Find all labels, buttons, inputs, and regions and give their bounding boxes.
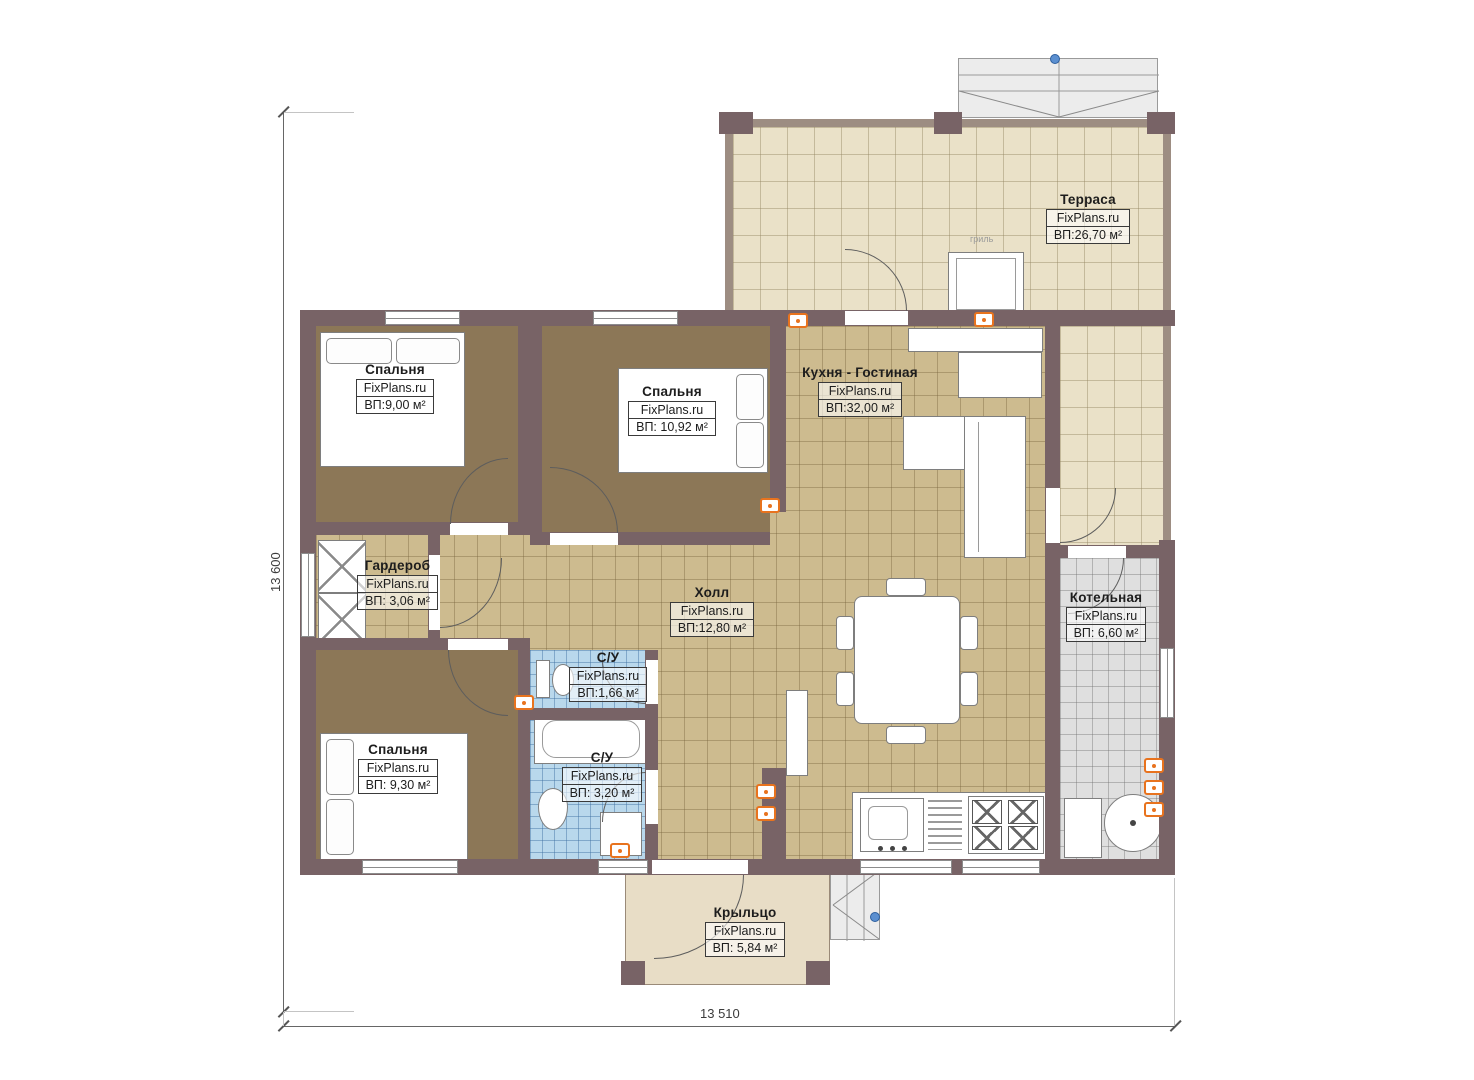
pillow (326, 799, 354, 855)
terrace-post (1147, 112, 1175, 134)
dimension-line-left (283, 112, 284, 1012)
wall-bath-divider (530, 708, 658, 720)
room-brand: FixPlans.ru (357, 380, 434, 396)
socket-icon (756, 806, 776, 821)
door-opening-terrace-side (1046, 488, 1060, 543)
room-brand: FixPlans.ru (629, 402, 715, 418)
room-label-bedroom1: Спальня FixPlans.ru ВП:9,00 м² (330, 362, 460, 414)
pillow (326, 338, 392, 364)
terrace-steps-lines (959, 59, 1159, 119)
room-label-porch: Крыльцо FixPlans.ru ВП: 5,84 м² (680, 905, 810, 957)
chair (960, 616, 978, 650)
room-label-bath2: С/У FixPlans.ru ВП: 3,20 м² (552, 750, 652, 802)
sink-knob (878, 846, 883, 851)
sink-knob (902, 846, 907, 851)
room-name: Терраса (1028, 192, 1148, 207)
tv-cabinet (786, 690, 808, 776)
room-name: Спальня (607, 384, 737, 399)
socket-icon (788, 313, 808, 328)
kitchen-cabinet (958, 352, 1042, 398)
room-name: Спальня (330, 362, 460, 377)
terrace-post (934, 112, 962, 134)
floor-plan-canvas: 13 600 13 510 (0, 0, 1474, 1080)
room-name: Спальня (333, 742, 463, 757)
room-area: ВП: 9,30 м² (359, 776, 438, 793)
socket-icon (760, 498, 780, 513)
grill-label: гриль (970, 234, 993, 244)
boiler-tank-center (1130, 820, 1136, 826)
socket-icon (514, 695, 534, 710)
kitchen-cabinet (908, 328, 1043, 352)
dimension-label-left: 13 600 (268, 552, 283, 592)
window (598, 860, 648, 874)
wall-kitchen-left-upper (770, 326, 786, 512)
sink-bowl (868, 806, 908, 840)
porch-post (621, 961, 645, 985)
room-brand: FixPlans.ru (671, 603, 753, 619)
toilet-tank (536, 660, 550, 698)
terrace-steps (958, 58, 1158, 118)
chair (886, 578, 926, 596)
stove-burner (1008, 800, 1038, 824)
socket-icon (974, 312, 994, 327)
marker-dot (1050, 54, 1060, 64)
pillow (736, 374, 764, 420)
marker-dot (870, 912, 880, 922)
socket-icon (1144, 780, 1164, 795)
room-label-bedroom2: Спальня FixPlans.ru ВП: 10,92 м² (607, 384, 737, 436)
door-opening-bedroom3 (448, 639, 508, 650)
stove-burner (972, 826, 1002, 850)
porch-steps-lines (831, 869, 881, 941)
terrace-post (719, 112, 753, 134)
wall-bedroom2-left (530, 326, 542, 532)
sink-drainboard (928, 800, 962, 850)
dining-table (854, 596, 960, 724)
window (860, 860, 952, 874)
socket-icon (1144, 802, 1164, 817)
room-area: ВП:12,80 м² (671, 619, 753, 636)
room-area: ВП: 10,92 м² (629, 418, 715, 435)
room-label-wardrobe: Гардероб FixPlans.ru ВП: 3,06 м² (335, 558, 460, 610)
window (301, 553, 315, 637)
pillow (736, 422, 764, 468)
room-brand: FixPlans.ru (819, 383, 901, 399)
grill-inner (956, 258, 1016, 310)
door-opening-bedroom2 (550, 533, 618, 545)
window (362, 860, 458, 874)
room-area: ВП:32,00 м² (819, 399, 901, 416)
dimension-line-bottom (283, 1026, 1175, 1027)
washing-machine (1064, 798, 1102, 858)
room-area: ВП:1,66 м² (570, 684, 647, 701)
porch-steps (830, 868, 880, 940)
door-opening-boiler (1068, 546, 1126, 558)
extension-line (284, 112, 354, 113)
room-name: Кухня - Гостиная (785, 365, 935, 380)
room-brand: FixPlans.ru (563, 768, 642, 784)
room-brand: FixPlans.ru (1067, 608, 1146, 624)
terrace-wall-left (725, 127, 733, 310)
room-name: Холл (647, 585, 777, 600)
chair (960, 672, 978, 706)
room-name: С/У (558, 650, 658, 665)
stove-burner (972, 800, 1002, 824)
room-name: Котельная (1050, 590, 1162, 605)
extension-line (1174, 878, 1175, 1026)
pillow (396, 338, 460, 364)
socket-icon (1144, 758, 1164, 773)
room-brand: FixPlans.ru (358, 576, 437, 592)
window (593, 311, 678, 325)
room-brand: FixPlans.ru (706, 923, 785, 939)
wall-bedroom3-right (518, 650, 530, 859)
room-label-boiler: Котельная FixPlans.ru ВП: 6,60 м² (1050, 590, 1162, 642)
room-area: ВП: 6,60 м² (1067, 624, 1146, 641)
room-label-hall: Холл FixPlans.ru ВП:12,80 м² (647, 585, 777, 637)
room-name: Крыльцо (680, 905, 810, 920)
room-label-bedroom3: Спальня FixPlans.ru ВП: 9,30 м² (333, 742, 463, 794)
door-opening-bedroom1 (450, 523, 508, 535)
sofa (964, 416, 1026, 558)
extension-line (284, 1011, 354, 1012)
wall-bedroom1-right (518, 326, 530, 522)
room-brand: FixPlans.ru (359, 760, 438, 776)
room-label-kitchen-living: Кухня - Гостиная FixPlans.ru ВП:32,00 м² (785, 365, 935, 417)
room-label-bath1: С/У FixPlans.ru ВП:1,66 м² (558, 650, 658, 702)
door-opening-terrace (845, 311, 908, 325)
window (385, 311, 460, 325)
room-area: ВП: 5,84 м² (706, 939, 785, 956)
room-area: ВП:26,70 м² (1047, 226, 1129, 243)
room-area: ВП:9,00 м² (357, 396, 434, 413)
room-label-terrace: Терраса FixPlans.ru ВП:26,70 м² (1028, 192, 1148, 244)
terrace-wall-right (1163, 119, 1171, 540)
room-name: С/У (552, 750, 652, 765)
window (1160, 648, 1174, 718)
socket-icon (756, 784, 776, 799)
dimension-label-bottom: 13 510 (700, 1006, 740, 1021)
stove-burner (1008, 826, 1038, 850)
sink-knob (890, 846, 895, 851)
chair (886, 726, 926, 744)
socket-icon (610, 843, 630, 858)
window (962, 860, 1040, 874)
room-brand: FixPlans.ru (1047, 210, 1129, 226)
porch-post (806, 961, 830, 985)
chair (836, 616, 854, 650)
room-name: Гардероб (335, 558, 460, 573)
door-opening-entry (652, 860, 748, 874)
room-area: ВП: 3,20 м² (563, 784, 642, 801)
extension-line (283, 1012, 284, 1026)
sofa-cushion-line (978, 422, 979, 552)
room-area: ВП: 3,06 м² (358, 592, 437, 609)
chair (836, 672, 854, 706)
room-brand: FixPlans.ru (570, 668, 647, 684)
